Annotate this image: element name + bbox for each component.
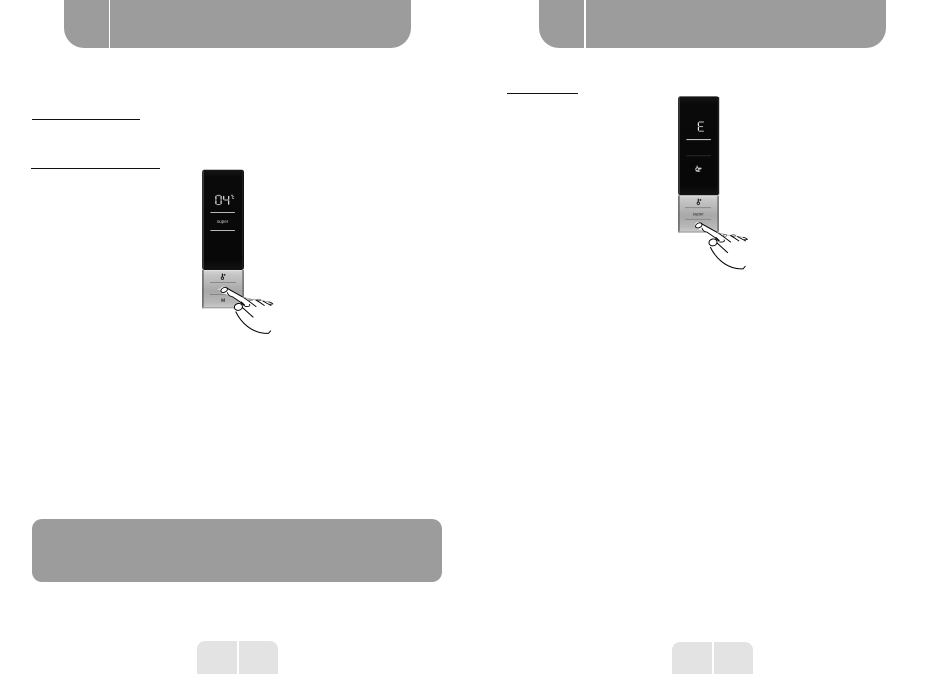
svg-text:super: super xyxy=(217,219,229,224)
svg-text:M: M xyxy=(221,298,225,304)
svg-text:super: super xyxy=(693,211,705,216)
